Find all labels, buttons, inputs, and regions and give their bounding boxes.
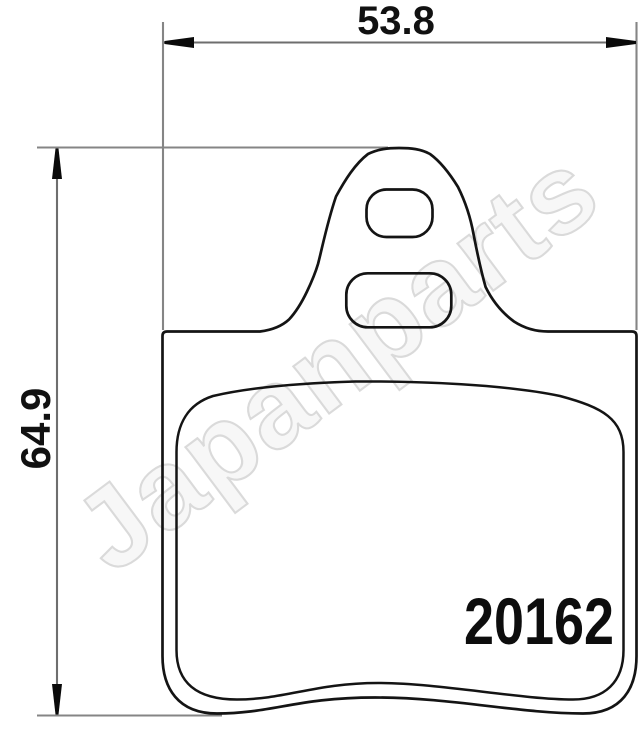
- svg-text:20162: 20162: [464, 584, 614, 658]
- svg-text:64.9: 64.9: [12, 388, 59, 470]
- svg-text:53.8: 53.8: [357, 0, 435, 43]
